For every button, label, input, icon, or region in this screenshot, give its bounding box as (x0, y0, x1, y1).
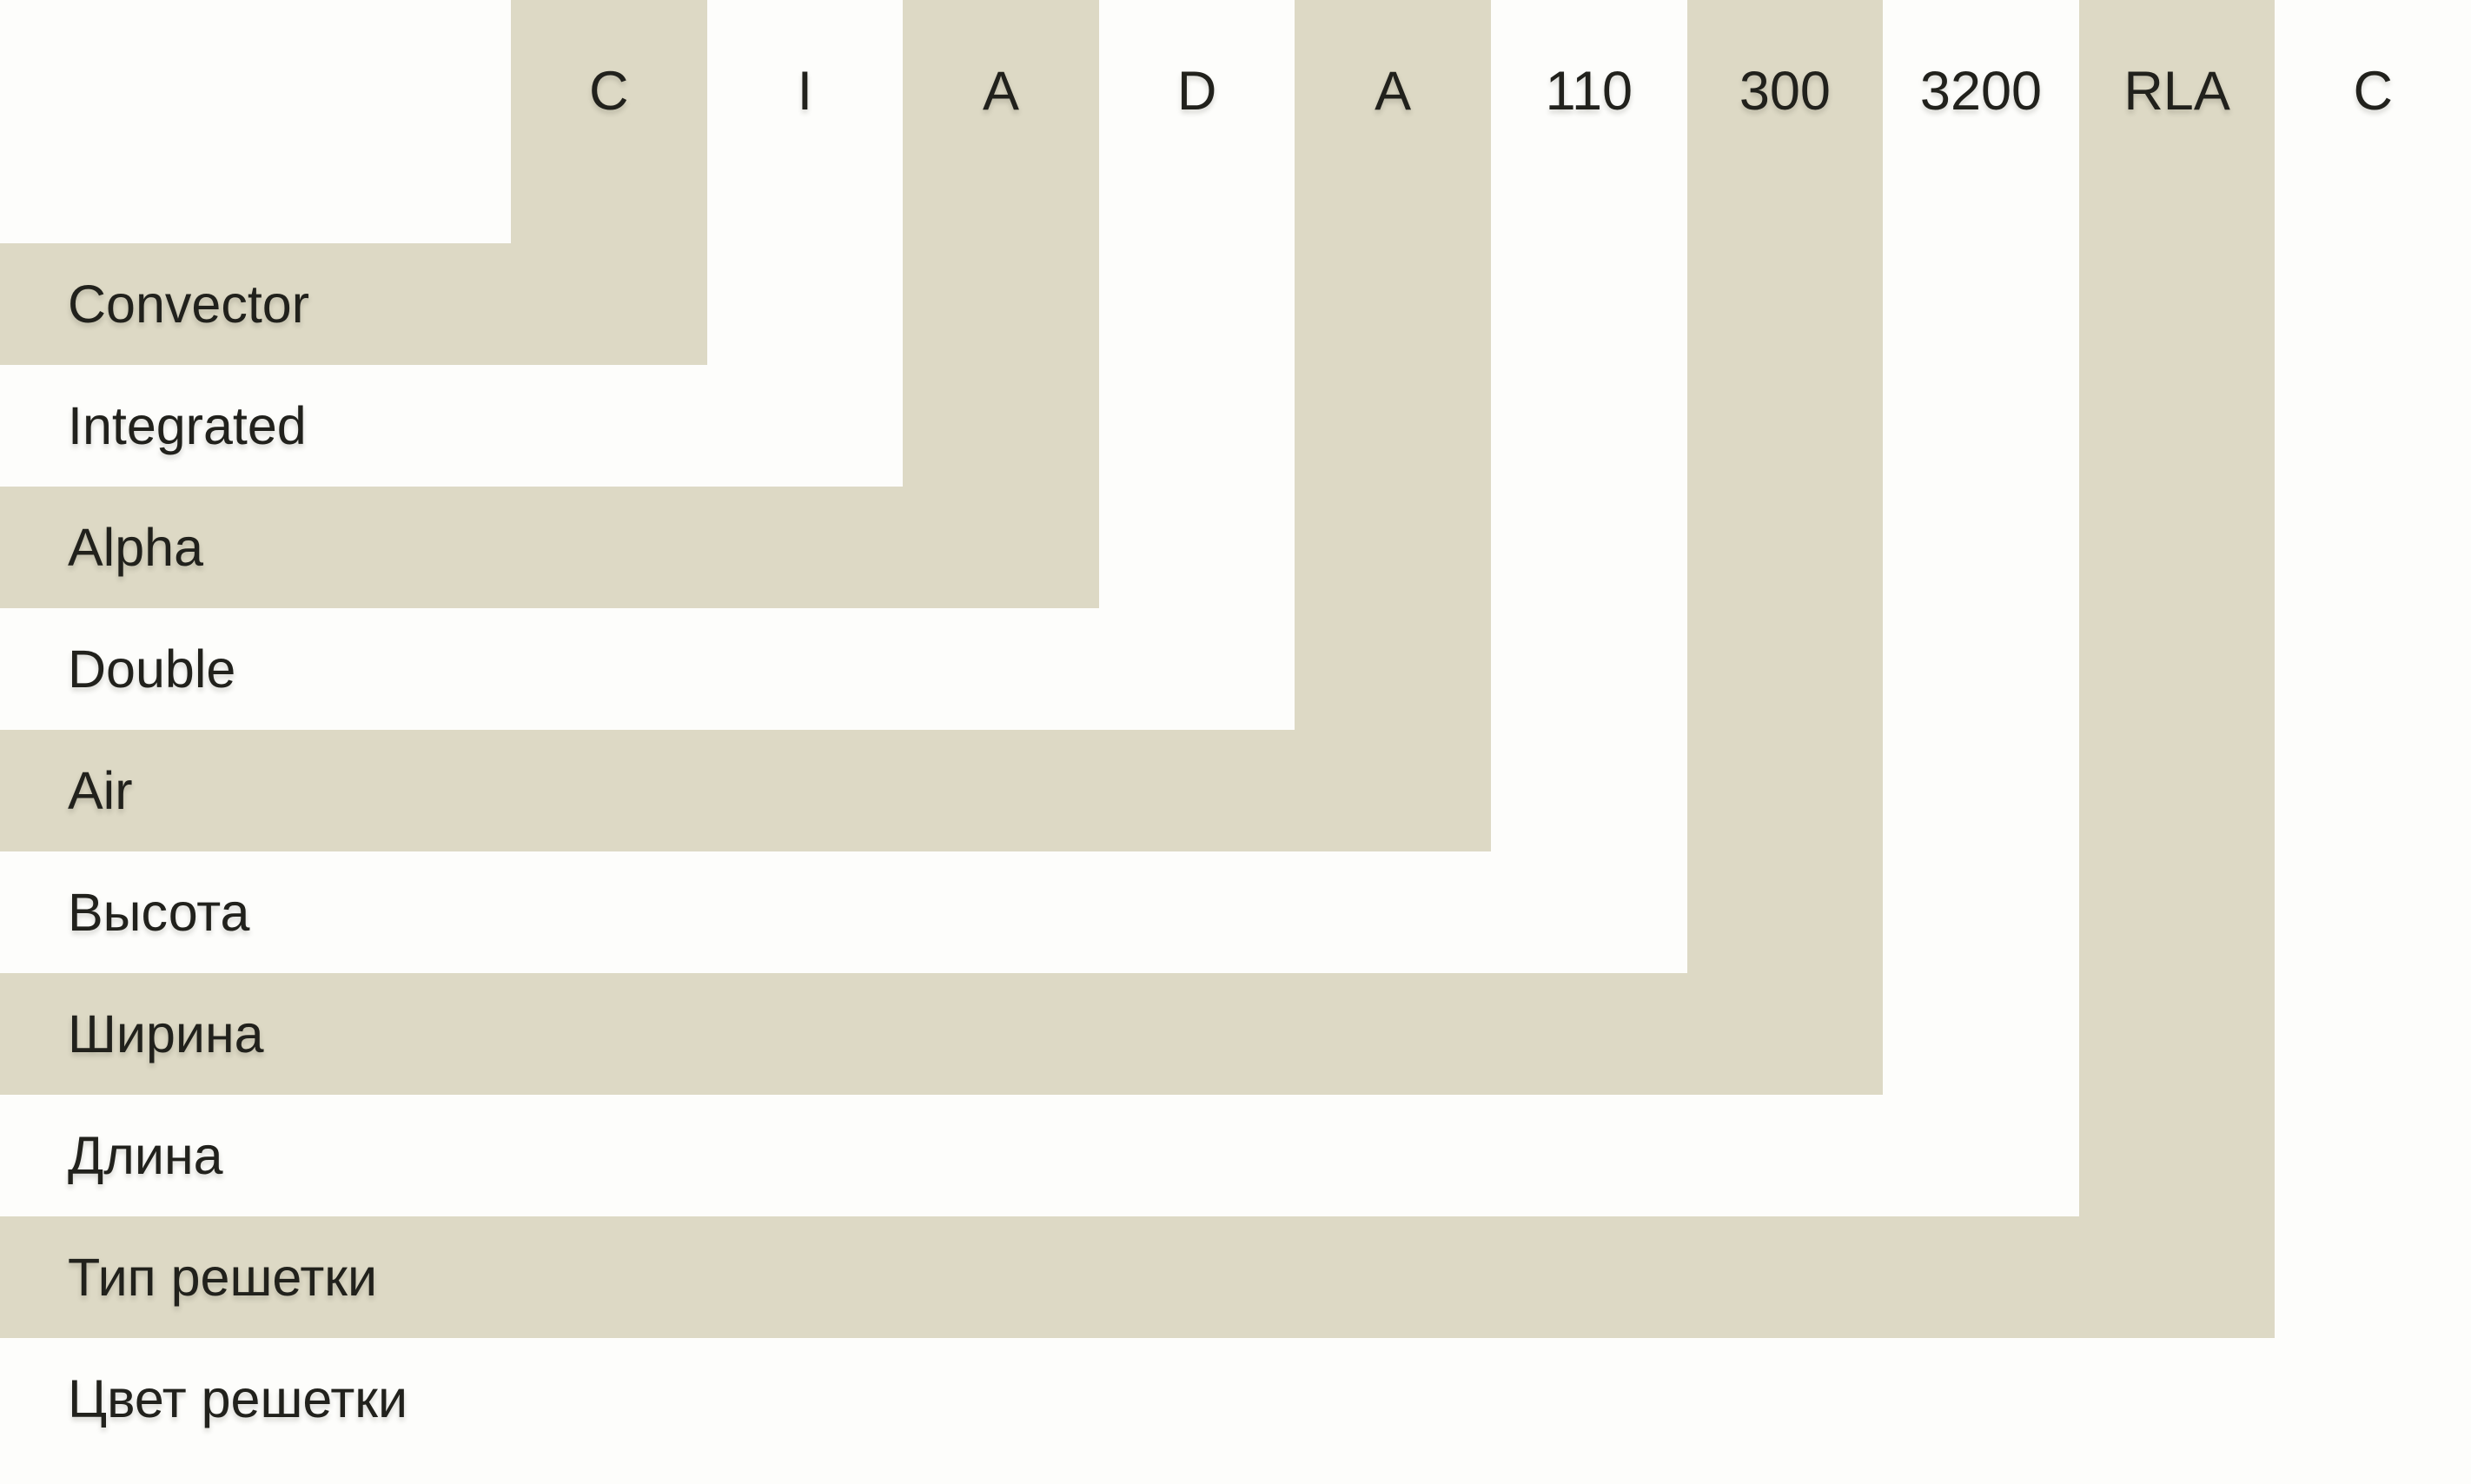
legend-label: Цвет решетки (0, 1338, 1110, 1460)
code-segment-text: C (2275, 53, 2471, 129)
legend-label: Integrated (0, 365, 1110, 487)
legend-label: Тип решетки (0, 1216, 1110, 1338)
code-segment-text: RLA (2079, 53, 2276, 129)
legend-label: Air (0, 730, 1110, 851)
legend-label: Convector (0, 243, 1110, 365)
code-column-grille-color (2275, 0, 2471, 1460)
code-segment-text: 3200 (1883, 53, 2079, 129)
code-column-grille-type (2079, 0, 2276, 1338)
code-column-width (1687, 0, 1884, 1095)
code-column-length (1883, 0, 2079, 1216)
code-segment-text: A (1295, 53, 1491, 129)
code-segment-text: C (511, 53, 707, 129)
code-segment-text: D (1099, 53, 1295, 129)
code-segment-text: 300 (1687, 53, 1884, 129)
legend-label: Alpha (0, 487, 1110, 608)
code-segment-text: I (707, 53, 904, 129)
legend-label: Длина (0, 1095, 1110, 1216)
model-code-diagram: C I A D A 110 300 3200 RLA C Convector I… (0, 0, 2471, 1484)
legend-label: Double (0, 608, 1110, 730)
code-column-height (1491, 0, 1687, 973)
code-segment-text: 110 (1491, 53, 1687, 129)
legend-label: Ширина (0, 973, 1110, 1095)
legend-label: Высота (0, 851, 1110, 973)
code-segment-text: A (903, 53, 1099, 129)
